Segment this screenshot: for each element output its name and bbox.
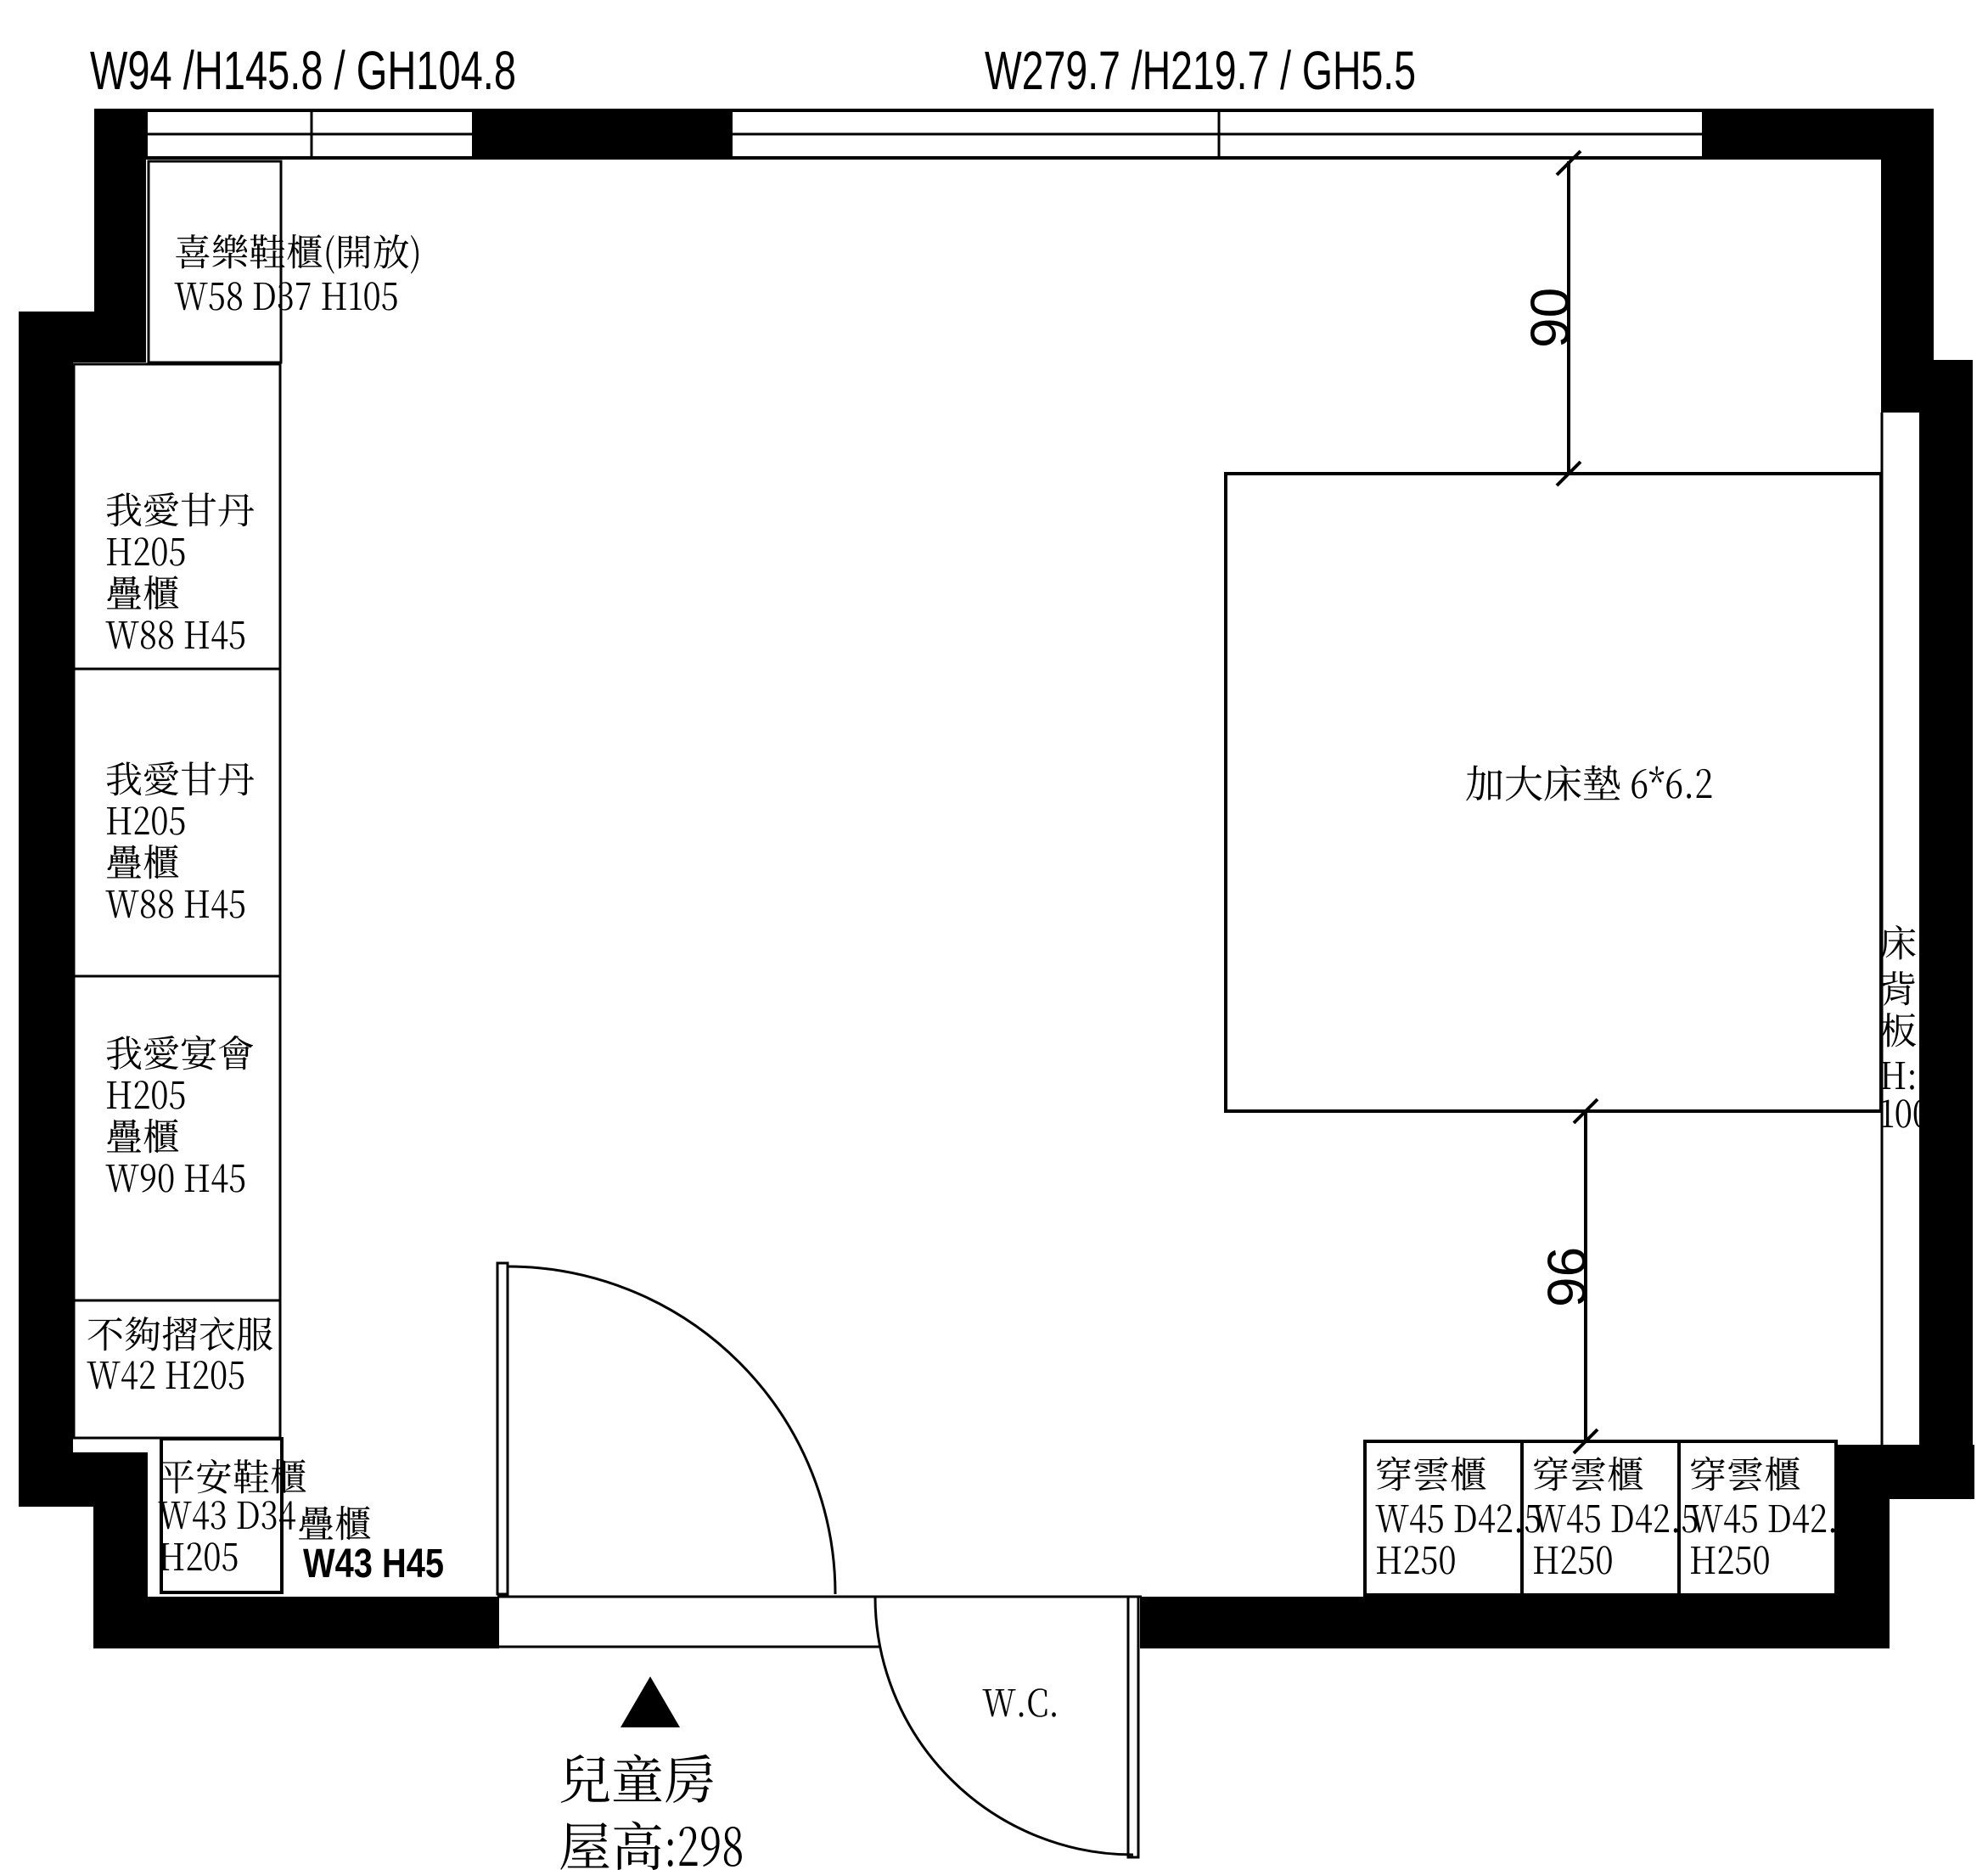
- svg-text:90: 90: [1519, 288, 1581, 348]
- svg-text:W279.7 /H219.7 / GH5.5: W279.7 /H219.7 / GH5.5: [985, 40, 1416, 101]
- svg-text:W43 H45: W43 H45: [303, 1541, 444, 1586]
- svg-text:96: 96: [1536, 1247, 1598, 1307]
- svg-text:W94 /H145.8 / GH104.8: W94 /H145.8 / GH104.8: [90, 40, 516, 101]
